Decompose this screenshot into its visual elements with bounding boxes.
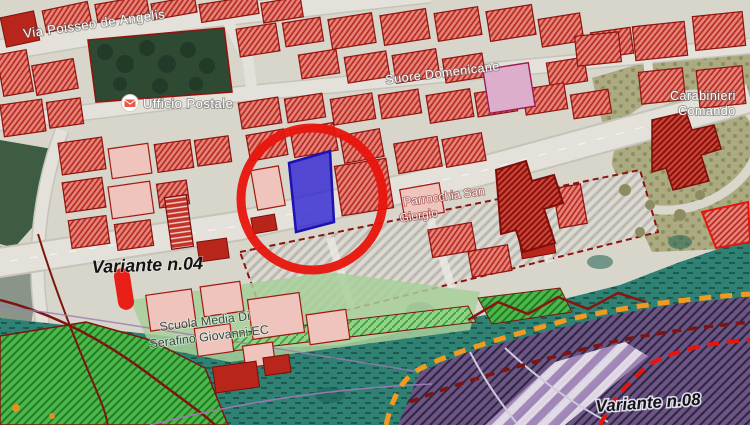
building-footprint — [212, 361, 259, 393]
building-footprint — [434, 7, 482, 42]
building-footprint — [0, 99, 46, 137]
building-footprint — [328, 13, 376, 50]
building-footprint — [154, 140, 194, 173]
poi-label-carabinieri-1: Carabinieri — [670, 89, 736, 103]
building-footprint — [426, 89, 474, 124]
building-footprint — [46, 98, 83, 128]
building-footprint — [298, 49, 339, 79]
building-footprint — [251, 214, 277, 234]
post-office-icon — [122, 95, 139, 112]
building-footprint — [108, 181, 154, 219]
building-footprint — [194, 136, 231, 166]
building-footprint — [114, 220, 153, 251]
building-footprint — [68, 215, 110, 248]
poi-label-carabinieri-2: Comando — [678, 104, 736, 118]
building-footprint — [442, 133, 486, 168]
orange-marker-small — [49, 413, 55, 419]
variante-04-label: Variante n.04 — [91, 253, 203, 277]
building-footprint — [380, 9, 430, 46]
orange-marker-small — [12, 404, 20, 412]
building-footprint — [108, 143, 152, 178]
zoning-map-canvas[interactable]: Via Poisseo de Angelis Suore Domenicane … — [0, 0, 750, 425]
building-footprint — [263, 354, 291, 375]
building-footprint — [570, 89, 611, 119]
building-footprint — [575, 32, 622, 66]
building-footprint — [282, 17, 323, 47]
building-footprint — [632, 21, 687, 60]
building-footprint — [306, 309, 350, 344]
building-footprint — [58, 137, 106, 175]
building-footprint — [236, 23, 280, 57]
building-footprint — [251, 166, 286, 210]
building-footprint — [32, 59, 79, 96]
building-footprint — [62, 177, 106, 212]
poi-label-post-office: Ufficio Postale — [143, 96, 233, 111]
building-footprint — [284, 93, 325, 123]
building-footprint — [238, 97, 282, 129]
building-footprint — [692, 11, 745, 50]
courtyard-garden — [88, 28, 232, 102]
map-viewport: Via Poisseo de Angelis Suore Domenicane … — [0, 0, 750, 425]
building-footprint — [486, 5, 536, 42]
selected-parcel-highlight[interactable] — [289, 151, 334, 232]
